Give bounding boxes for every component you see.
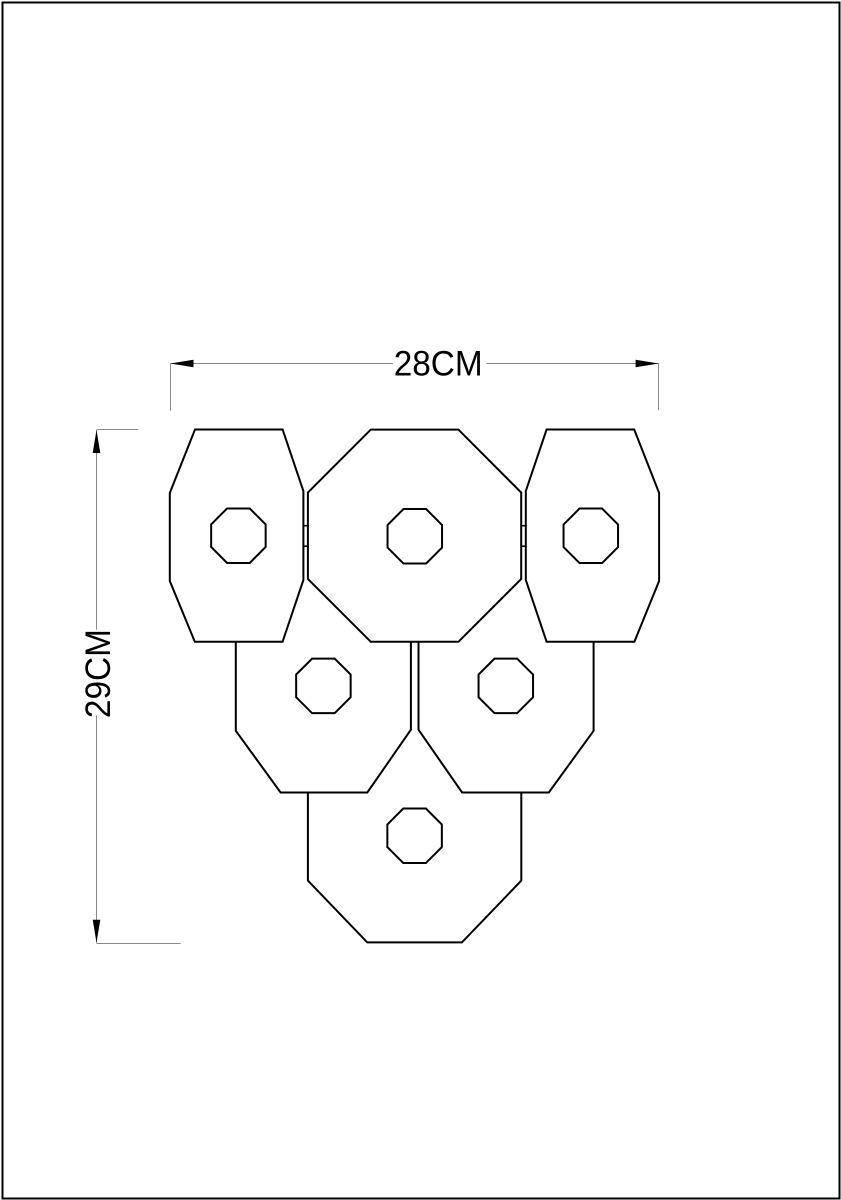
svg-text:29CM: 29CM <box>79 629 118 718</box>
svg-text:28CM: 28CM <box>394 345 483 384</box>
